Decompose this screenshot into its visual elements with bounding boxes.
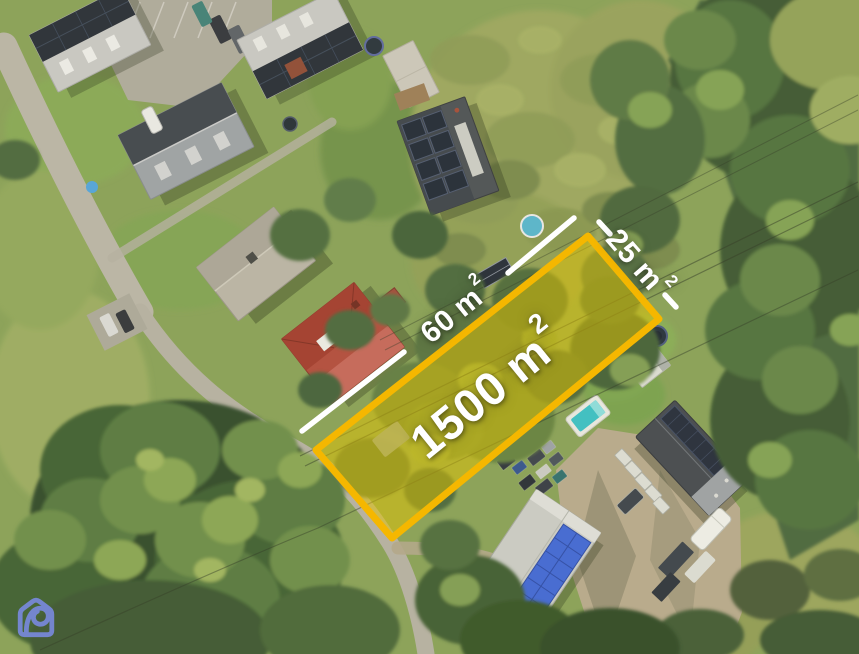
logo-spiral <box>26 608 48 633</box>
house-spiral-logo-icon <box>13 590 59 642</box>
listing-aerial-photo: 1500m2 60m2 25m2 <box>0 0 859 654</box>
